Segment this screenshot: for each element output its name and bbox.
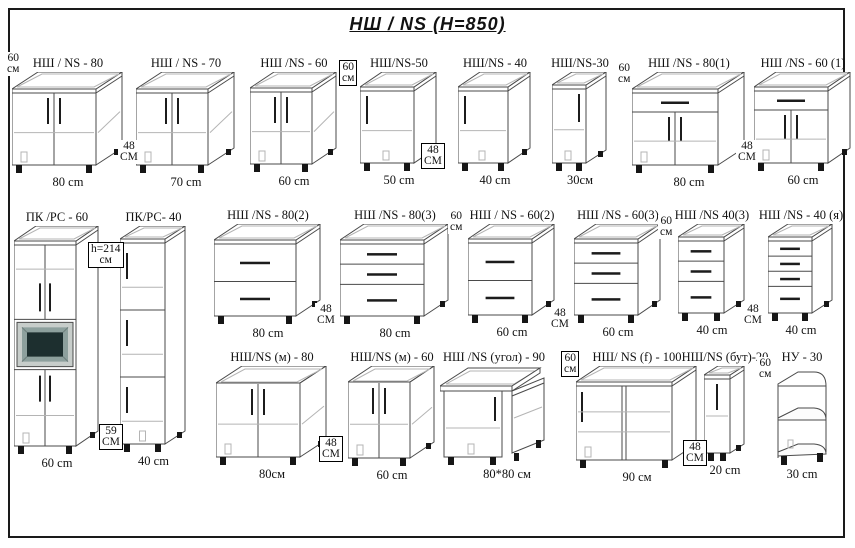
dimension-note-line: СМ	[317, 315, 335, 326]
dimension-note-line: см	[342, 73, 354, 84]
dimension-note-line: см	[564, 364, 576, 375]
dimension-note-line: СМ	[120, 152, 138, 163]
cabinet-ns-m-60: НШ/NS (м) - 6060 cm	[348, 350, 436, 483]
catalog-sheet: НШ / NS (H=850) НШ / NS - 8080 cmНШ / NS…	[0, 0, 855, 548]
cabinet-label: НШ /NS - 60 (1)	[761, 56, 846, 72]
cabinet-label: НШ/NS (м) - 60	[350, 350, 433, 366]
cabinet-dimension: 60 cm	[788, 173, 819, 188]
cabinet-drawing	[768, 224, 834, 322]
dimension-note-line: СМ	[551, 319, 569, 330]
cabinet-ns-40-3: НШ /NS 40(3)40 cm	[678, 208, 746, 338]
cabinet-label: ПК/РС- 40	[125, 210, 181, 226]
cabinet-ns-80-1: НШ /NS - 80(1)80 cm	[632, 56, 746, 190]
cabinet-pk-rc-40: ПК/РС- 4040 cm	[120, 210, 187, 469]
cabinet-dimension: 60 cm	[497, 325, 528, 340]
cabinet-ns-40-ya: НШ /NS - 40 (я)40 cm	[768, 208, 834, 338]
cabinet-nu-30: НУ - 3030 cm	[772, 350, 832, 482]
dimension-note-boxed: 60см	[339, 60, 357, 86]
cabinet-ns-f-100: НШ/ NS (f) - 10090 см	[576, 350, 698, 485]
cabinet-drawing	[632, 72, 746, 174]
cabinet-drawing	[340, 224, 450, 325]
cabinet-ns-60: НШ /NS - 6060 cm	[250, 56, 338, 189]
cabinet-dimension: 80 cm	[380, 326, 411, 341]
cabinet-label: НШ /NS - 80(2)	[227, 208, 309, 224]
cabinet-ns-40: НШ/NS - 4040 cm	[458, 56, 532, 188]
cabinet-drawing	[250, 72, 338, 173]
cabinet-ns-60-3: НШ /NS - 60(3)60 cm	[574, 208, 662, 340]
cabinet-ns-60-1: НШ /NS - 60 (1)60 cm	[754, 56, 852, 188]
cabinet-drawing	[678, 224, 746, 322]
cabinet-drawing	[468, 224, 556, 324]
cabinet-dimension: 20 cm	[710, 463, 741, 478]
cabinet-drawing	[216, 366, 328, 466]
cabinet-dimension: 60 cm	[279, 174, 310, 189]
dimension-note-boxed: 48СМ	[421, 143, 445, 169]
cabinet-ns-60-2: НШ / NS - 60(2)60 cm	[468, 208, 556, 340]
dimension-note: 60см	[5, 52, 21, 76]
dimension-note-line: СМ	[102, 437, 120, 448]
cabinet-dimension: 60 cm	[42, 456, 73, 471]
dimension-note-line: СМ	[738, 152, 756, 163]
cabinet-dimension: 40 cm	[786, 323, 817, 338]
cabinet-drawing	[348, 366, 436, 467]
cabinet-ns-m-80: НШ/NS (м) - 8080см	[216, 350, 328, 482]
dimension-note-boxed: 48СМ	[319, 436, 343, 462]
cabinet-dimension: 30см	[567, 173, 593, 188]
cabinet-label: НШ / NS - 60(2)	[470, 208, 555, 224]
cabinet-dimension: 60 cm	[377, 468, 408, 483]
cabinet-dimension: 40 cm	[138, 454, 169, 469]
dimension-note-boxed: 59СМ	[99, 424, 123, 450]
cabinet-label: НШ/NS (м) - 80	[230, 350, 313, 366]
cabinet-ns-70: НШ / NS - 7070 cm	[136, 56, 236, 190]
cabinet-label: НУ - 30	[782, 350, 823, 366]
dimension-note-line: см	[450, 222, 462, 233]
cabinet-dimension: 30 cm	[787, 467, 818, 482]
cabinet-drawing	[458, 72, 532, 172]
cabinet-dimension: 80*80 см	[483, 467, 531, 482]
cabinet-label: НШ /NS - 60(3)	[577, 208, 659, 224]
dimension-note: 60см	[448, 210, 464, 234]
dimension-note: 60см	[658, 215, 674, 239]
cabinet-drawing	[214, 224, 322, 325]
cabinet-dimension: 80 cm	[53, 175, 84, 190]
cabinet-label: НШ/NS (бут)-20	[682, 350, 769, 366]
cabinet-drawing	[440, 366, 548, 466]
cabinet-label: НШ /NS 40(3)	[675, 208, 749, 224]
dimension-note-line: СМ	[686, 453, 704, 464]
cabinet-label: НШ / NS - 80	[33, 56, 103, 72]
cabinet-dimension: 90 см	[622, 470, 651, 485]
cabinet-label: ПК /РС - 60	[26, 210, 88, 226]
cabinet-label: НШ/ NS (f) - 100	[593, 350, 682, 366]
cabinet-dimension: 40 cm	[480, 173, 511, 188]
cabinet-dimension: 80см	[259, 467, 285, 482]
cabinet-dimension: 60 cm	[603, 325, 634, 340]
cabinet-drawing	[12, 72, 124, 174]
dimension-note-line: СМ	[424, 156, 442, 167]
cabinet-ns-but-20: НШ/NS (бут)-2020 cm	[704, 350, 746, 478]
cabinet-dimension: 50 cm	[384, 173, 415, 188]
cabinet-drawing	[754, 72, 852, 172]
cabinet-ns-30: НШ/NS-3030см	[552, 56, 608, 188]
page-title: НШ / NS (H=850)	[0, 14, 855, 35]
cabinet-label: НШ / NS - 70	[151, 56, 221, 72]
dimension-note-boxed: 48СМ	[683, 440, 707, 466]
dimension-note-line: см	[91, 255, 121, 266]
cabinet-dimension: 40 cm	[697, 323, 728, 338]
cabinet-label: НШ /NS - 80(1)	[648, 56, 730, 72]
dimension-note: 48СМ	[742, 303, 764, 327]
cabinet-label: НШ /NS - 60	[260, 56, 327, 72]
cabinet-dimension: 80 cm	[674, 175, 705, 190]
dimension-note-line: см	[759, 369, 771, 380]
cabinet-label: НШ/NS-50	[370, 56, 428, 72]
dimension-note-line: СМ	[744, 315, 762, 326]
cabinet-label: НШ /NS (угол) - 90	[443, 350, 545, 366]
dimension-note: 60см	[757, 357, 773, 381]
cabinet-label: НШ /NS - 40 (я)	[759, 208, 843, 224]
dimension-note: 60см	[616, 62, 632, 86]
cabinet-dimension: 80 cm	[253, 326, 284, 341]
dimension-note: 48СМ	[549, 307, 571, 331]
dimension-note: 48СМ	[118, 140, 140, 164]
cabinet-drawing	[574, 224, 662, 324]
dimension-note-line: см	[7, 64, 19, 75]
cabinet-label: НШ/NS - 40	[463, 56, 527, 72]
dimension-note-line: СМ	[322, 449, 340, 460]
cabinet-drawing	[120, 226, 187, 453]
cabinet-drawing	[136, 72, 236, 174]
cabinet-label: НШ /NS - 80(3)	[354, 208, 436, 224]
cabinet-drawing	[704, 366, 746, 462]
dimension-note: 48СМ	[736, 140, 758, 164]
cabinet-drawing	[772, 366, 832, 466]
dimension-note-line: см	[618, 74, 630, 85]
dimension-note: 48СМ	[315, 303, 337, 327]
dimension-note-boxed: h=214см	[88, 242, 124, 268]
cabinet-ns-ugol-90: НШ /NS (угол) - 9080*80 см	[440, 350, 548, 482]
cabinet-ns-80-3: НШ /NS - 80(3)80 cm	[340, 208, 450, 341]
cabinet-drawing	[576, 366, 698, 469]
cabinet-dimension: 70 cm	[171, 175, 202, 190]
cabinet-ns-80-2: НШ /NS - 80(2)80 cm	[214, 208, 322, 341]
cabinet-label: НШ/NS-30	[551, 56, 609, 72]
dimension-note-boxed: 60см	[561, 351, 579, 377]
cabinet-ns-80: НШ / NS - 8080 cm	[12, 56, 124, 190]
dimension-note-line: см	[660, 227, 672, 238]
cabinet-drawing	[552, 72, 608, 172]
